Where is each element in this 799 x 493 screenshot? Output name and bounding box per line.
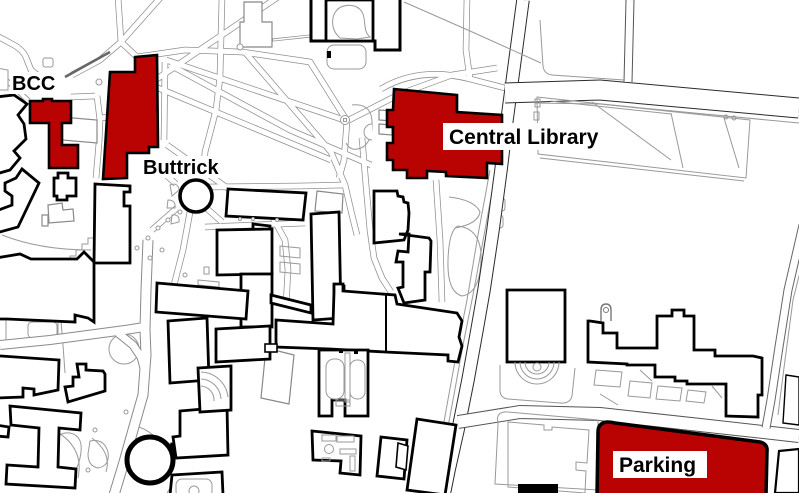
svg-text:Buttrick: Buttrick	[143, 157, 219, 179]
svg-text:BCC: BCC	[12, 73, 55, 95]
svg-text:Parking: Parking	[619, 454, 696, 477]
svg-text:Central Library: Central Library	[449, 126, 599, 149]
